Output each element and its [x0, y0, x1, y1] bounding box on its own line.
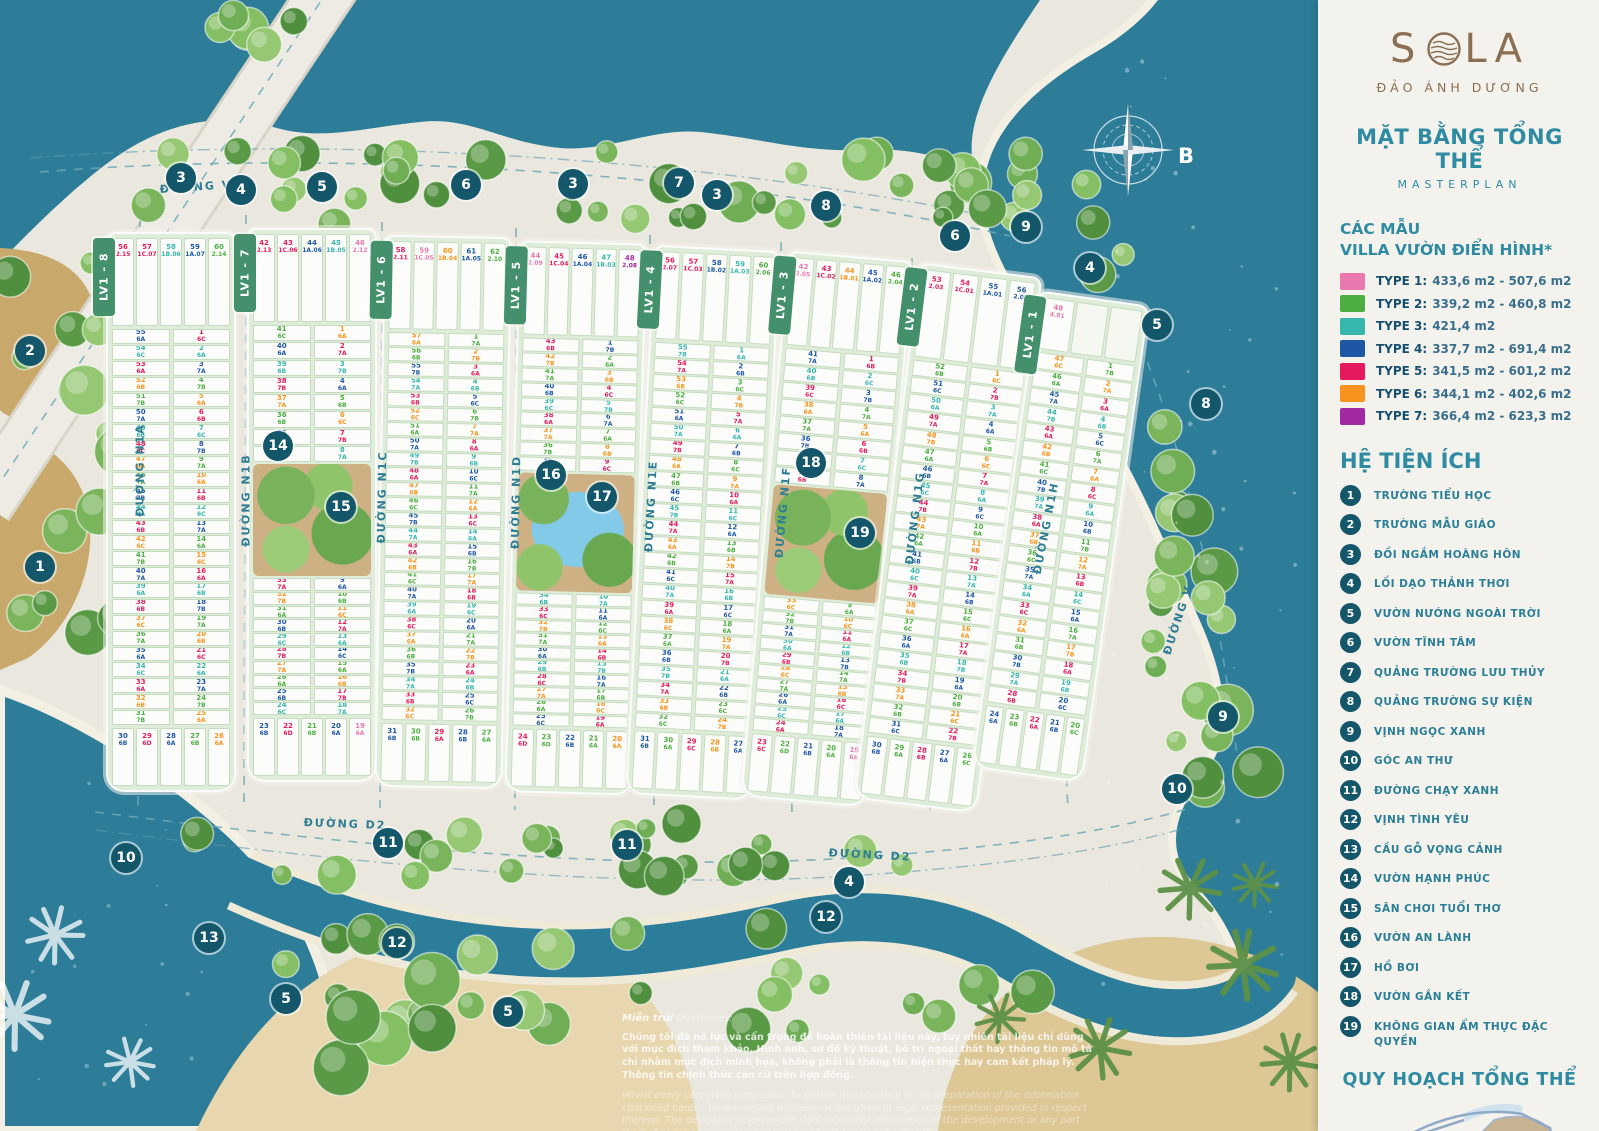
lot-38[interactable]: 386B: [112, 599, 170, 614]
type-label: TYPE 1:: [1376, 274, 1427, 288]
amenities-list: 1TRƯỜNG TIỂU HỌC2TRƯỜNG MẪU GIÁO3ĐỒI NGẮ…: [1340, 485, 1579, 1050]
lot-17[interactable]: 176B: [173, 583, 231, 598]
lot-56[interactable]: 562.15: [112, 238, 134, 326]
map-marker-9[interactable]: 9: [1011, 212, 1041, 242]
lot-2[interactable]: 27A: [314, 342, 372, 358]
lot-59[interactable]: 591A.07: [184, 238, 206, 326]
map-marker-7[interactable]: 7: [664, 168, 694, 198]
lot-19[interactable]: 196A: [349, 718, 371, 776]
lot-7[interactable]: 76C: [173, 424, 231, 439]
lot-31[interactable]: 316B: [632, 730, 656, 789]
lot-42[interactable]: 426B: [384, 556, 441, 571]
lot-42[interactable]: 426C: [112, 535, 170, 550]
lot-37[interactable]: 377A: [253, 394, 311, 410]
lot-22[interactable]: 226D: [770, 735, 796, 795]
lot-46[interactable]: 462.12: [349, 234, 371, 322]
lot-9[interactable]: 97A: [706, 474, 763, 492]
lot-25[interactable]: 256C: [512, 713, 569, 727]
lot-47[interactable]: 471B.03: [593, 248, 617, 337]
lot-20[interactable]: 206A: [605, 731, 628, 790]
lot-31[interactable]: 316A: [253, 606, 311, 619]
lot-19[interactable]: 196A: [572, 715, 629, 729]
lot-37[interactable]: 376C: [112, 615, 170, 630]
lot-8[interactable]: 86B: [579, 443, 636, 458]
lot-18[interactable]: 187B: [173, 599, 231, 614]
lot-11[interactable]: 116C: [314, 606, 372, 619]
lot-4[interactable]: 47B: [173, 377, 231, 392]
lot-34[interactable]: 347A: [382, 676, 439, 691]
lot-54[interactable]: 547A: [387, 377, 444, 392]
lot-16[interactable]: 166B: [700, 586, 757, 604]
lot-43[interactable]: 431C.06: [277, 234, 299, 322]
lot-38[interactable]: 387B: [253, 377, 311, 393]
lot-28[interactable]: 286A: [160, 728, 182, 786]
lot-15[interactable]: 157B: [573, 661, 630, 675]
map-marker-1[interactable]: 1: [25, 552, 55, 582]
lot-45[interactable]: 451C.04: [546, 247, 570, 336]
lot-13[interactable]: 136A: [314, 633, 372, 646]
lot-53[interactable]: 536B: [387, 392, 444, 407]
lot-33[interactable]: 336C: [515, 606, 572, 620]
lot-21[interactable]: 216A: [696, 667, 753, 685]
lot-39[interactable]: 396C: [521, 397, 578, 412]
lot-55[interactable]: 557B: [654, 342, 711, 360]
lot-35[interactable]: 357B: [637, 664, 694, 682]
lot-16[interactable]: 167A: [573, 674, 630, 688]
lot-30[interactable]: 306A: [655, 732, 679, 791]
lot-25[interactable]: 256B: [253, 688, 311, 701]
map-marker-11[interactable]: 11: [612, 830, 642, 860]
lot-6[interactable]: 67B: [446, 408, 503, 423]
lot-12[interactable]: 127A: [314, 619, 372, 632]
lot-36[interactable]: 367A: [112, 631, 170, 646]
lot-30[interactable]: 306B: [112, 728, 134, 786]
lot-10[interactable]: 107A: [575, 594, 632, 608]
lot-42[interactable]: 427B: [522, 352, 579, 367]
lot-10[interactable]: 106A: [706, 490, 763, 508]
map-marker-6[interactable]: 6: [451, 170, 481, 200]
lot-57[interactable]: 571C.03: [679, 252, 705, 341]
lot-16[interactable]: 166B: [314, 675, 372, 688]
lot-60[interactable]: 602.14: [208, 238, 230, 326]
lot-39[interactable]: 396A: [112, 583, 170, 598]
lot-50[interactable]: 507A: [386, 437, 443, 452]
lot-21[interactable]: 216B: [793, 737, 819, 797]
map-marker-4[interactable]: 4: [226, 175, 256, 205]
lot-37[interactable]: 376A: [639, 632, 696, 650]
lot-30[interactable]: 306A: [514, 646, 571, 660]
lot-27[interactable]: 277A: [253, 661, 311, 674]
lot-19[interactable]: 197A: [698, 635, 755, 653]
lot-19[interactable]: 197A: [173, 615, 231, 630]
lot-26[interactable]: 266A: [253, 675, 311, 688]
lot-31[interactable]: 317A: [514, 633, 571, 647]
lot-2[interactable]: 26A: [581, 354, 638, 369]
lot-41[interactable]: 417A: [521, 367, 578, 382]
lot-23[interactable]: 236B: [253, 718, 275, 776]
lot-15[interactable]: 157A: [701, 570, 758, 588]
lot-12[interactable]: 126C: [574, 621, 631, 635]
lot-9[interactable]: 97A: [173, 456, 231, 471]
lot-5[interactable]: 56C: [447, 393, 504, 408]
lot-51[interactable]: 517B: [112, 393, 170, 408]
lot-18[interactable]: 187A: [314, 702, 372, 715]
lot-22[interactable]: 226B: [695, 683, 752, 701]
lot-24[interactable]: 247B: [173, 694, 231, 709]
map-marker-13[interactable]: 13: [194, 923, 224, 953]
lot-29[interactable]: 296B: [514, 659, 571, 673]
type-row-3: TYPE 3:421,4 m2: [1340, 318, 1579, 335]
lot-13[interactable]: 136A: [574, 634, 631, 648]
lot-48[interactable]: 486A: [386, 467, 443, 482]
lot-36[interactable]: 366B: [638, 648, 695, 666]
lot-56[interactable]: 566B: [388, 347, 445, 362]
lot-26[interactable]: 266A: [208, 728, 230, 786]
lot-11[interactable]: 116C: [705, 506, 762, 524]
lot-62[interactable]: 622.10: [483, 243, 506, 331]
lot-33[interactable]: 336A: [112, 678, 170, 693]
lot-49[interactable]: 497B: [386, 452, 443, 467]
map-marker-6[interactable]: 6: [940, 221, 970, 251]
lot-41[interactable]: 416C: [642, 567, 699, 585]
lot-22[interactable]: 227B: [442, 647, 499, 662]
lot-14[interactable]: 146C: [314, 647, 372, 660]
lot-8[interactable]: 86A: [446, 438, 503, 453]
lot-45[interactable]: 457B: [385, 512, 442, 527]
lot-22[interactable]: 226D: [277, 718, 299, 776]
lot-39[interactable]: 396A: [383, 601, 440, 616]
lot-25[interactable]: 256A: [173, 710, 231, 725]
lot-27[interactable]: 276B: [184, 728, 206, 786]
lot-43[interactable]: 436A: [384, 542, 441, 557]
lot-34[interactable]: 346B: [515, 592, 572, 606]
lot-12[interactable]: 126A: [704, 522, 761, 540]
lot-13[interactable]: 136B: [703, 538, 760, 556]
map-marker-3[interactable]: 3: [702, 180, 732, 210]
lot-15[interactable]: 156B: [444, 543, 501, 558]
lot-24[interactable]: 246D: [511, 728, 534, 787]
lot-36[interactable]: 367B: [519, 442, 576, 457]
lot-10[interactable]: 106C: [445, 468, 502, 483]
map-marker-2[interactable]: 2: [15, 336, 45, 366]
lot-28[interactable]: 287B: [253, 647, 311, 660]
lot-45[interactable]: 451B.05: [325, 234, 347, 322]
lot-30[interactable]: 306B: [253, 619, 311, 632]
lot-3[interactable]: 37A: [173, 361, 231, 376]
lot-8[interactable]: 87B: [173, 440, 231, 455]
lot-53[interactable]: 536B: [653, 374, 710, 392]
lot-38[interactable]: 386C: [640, 616, 697, 634]
map-marker-5[interactable]: 5: [307, 172, 337, 202]
lot-15[interactable]: 156A: [314, 661, 372, 674]
lot-36[interactable]: 366B: [383, 646, 440, 661]
lot-4[interactable]: 46A: [314, 377, 372, 393]
lot-57[interactable]: 571C.07: [136, 238, 158, 326]
lot-25[interactable]: 256C: [441, 692, 498, 707]
lot-30[interactable]: 306B: [404, 723, 427, 781]
lot-6[interactable]: 66B: [173, 408, 231, 423]
lot-47[interactable]: 476B: [385, 482, 442, 497]
lot-36[interactable]: 366B: [253, 411, 311, 427]
lot-50[interactable]: 507A: [650, 422, 707, 440]
amenity-item-1: 1TRƯỜNG TIỂU HỌC: [1340, 485, 1579, 506]
lot-7[interactable]: 77B: [314, 429, 372, 445]
lot-26[interactable]: 267B: [441, 707, 498, 722]
lot-3[interactable]: 36A: [447, 363, 504, 378]
map-marker-9[interactable]: 9: [1208, 702, 1238, 732]
lot-24[interactable]: 247B: [694, 715, 751, 733]
lot-39[interactable]: 396B: [253, 360, 311, 376]
lot-3[interactable]: 36B: [581, 369, 638, 384]
lot-9[interactable]: 96B: [445, 453, 502, 468]
amenity-item-19: 19KHÔNG GIAN ẨM THỰC ĐẶC QUYỀN: [1340, 1016, 1579, 1050]
map-marker-16[interactable]: 16: [536, 460, 566, 490]
lot-6[interactable]: 67A: [580, 413, 637, 428]
lot-46[interactable]: 461A.04: [570, 248, 594, 337]
lot-11[interactable]: 116A: [575, 607, 632, 621]
lot-52[interactable]: 526B: [112, 377, 170, 392]
lot-23[interactable]: 236A: [442, 662, 499, 677]
lot-8[interactable]: 87A: [314, 446, 372, 462]
lot-21[interactable]: 216A: [581, 730, 604, 789]
lot-31[interactable]: 316B: [380, 723, 403, 781]
lot-32[interactable]: 326C: [635, 712, 692, 730]
lot-8[interactable]: 86C: [707, 458, 764, 476]
lot-2[interactable]: 26B: [712, 361, 769, 379]
lot-18[interactable]: 186B: [443, 587, 500, 602]
lot-27[interactable]: 277A: [513, 686, 570, 700]
map-marker-17[interactable]: 17: [587, 482, 617, 512]
lot-33[interactable]: 337A: [253, 578, 311, 591]
lot-61[interactable]: 611A.05: [459, 242, 482, 330]
lot-1[interactable]: 16A: [713, 345, 770, 363]
lot-28[interactable]: 286B: [451, 724, 474, 782]
lot-32[interactable]: 326C: [382, 706, 439, 721]
lot-58[interactable]: 581B.02: [702, 253, 728, 342]
lot-41[interactable]: 416C: [253, 325, 311, 341]
lot-40[interactable]: 406B: [521, 382, 578, 397]
lot-38[interactable]: 386A: [520, 412, 577, 427]
lot-17[interactable]: 176C: [700, 603, 757, 621]
map-marker-10[interactable]: 10: [111, 843, 141, 873]
lot-13[interactable]: 136C: [444, 513, 501, 528]
lot-34[interactable]: 347A: [636, 680, 693, 698]
lot-14[interactable]: 146A: [444, 528, 501, 543]
lot-15[interactable]: 156C: [173, 551, 231, 566]
lot-58[interactable]: 581B.06: [160, 238, 182, 326]
lot-18[interactable]: 186A: [699, 619, 756, 637]
lot-38[interactable]: 386C: [383, 616, 440, 631]
lot-24[interactable]: 246C: [253, 702, 311, 715]
map-marker-3[interactable]: 3: [166, 163, 196, 193]
lot-20[interactable]: 206B: [173, 631, 231, 646]
map-marker-3[interactable]: 3: [558, 169, 588, 199]
lot-10[interactable]: 106B: [314, 592, 372, 605]
lot-23[interactable]: 236C: [747, 733, 773, 793]
lot-43[interactable]: 436B: [112, 520, 170, 535]
lot-13[interactable]: 137A: [173, 520, 231, 535]
amenity-number-badge: 6: [1340, 632, 1361, 653]
map-marker-12[interactable]: 12: [811, 902, 841, 932]
lot-19[interactable]: 196C: [443, 602, 500, 617]
lot-9[interactable]: 96C: [578, 458, 635, 473]
lot-23[interactable]: 236D: [534, 729, 557, 788]
lot-51[interactable]: 516A: [387, 422, 444, 437]
lot-21[interactable]: 216C: [173, 647, 231, 662]
map-marker-5[interactable]: 5: [493, 997, 523, 1027]
lot-7[interactable]: 76A: [579, 428, 636, 443]
lot-28[interactable]: 286C: [513, 673, 570, 687]
lot-1[interactable]: 17B: [582, 339, 639, 354]
map-marker-4[interactable]: 4: [1075, 253, 1105, 283]
lot-21[interactable]: 216B: [301, 718, 323, 776]
map-marker-4[interactable]: 4: [834, 867, 864, 897]
map-marker-14[interactable]: 14: [263, 431, 293, 461]
lot-14[interactable]: 146A: [173, 535, 231, 550]
lot-columns: 346B336C327B317A306A296B286C277A266A256C…: [512, 592, 631, 728]
lot-49[interactable]: 497B: [649, 438, 706, 456]
lot-33[interactable]: 336B: [636, 696, 693, 714]
lot-35[interactable]: 357B: [382, 661, 439, 676]
lot-6[interactable]: 66C: [314, 411, 372, 427]
lot-23[interactable]: 237A: [173, 678, 231, 693]
lot-32[interactable]: 326B: [112, 694, 170, 709]
map-marker-8[interactable]: 8: [1191, 389, 1221, 419]
lot-59[interactable]: 591A.03: [725, 255, 751, 344]
lot-37[interactable]: 376A: [383, 631, 440, 646]
lot-3[interactable]: 37B: [314, 360, 372, 376]
lot-40[interactable]: 406A: [253, 342, 311, 358]
lot-1[interactable]: 17A: [448, 333, 505, 348]
lot-28[interactable]: 286B: [702, 734, 726, 793]
lot-18[interactable]: 186C: [572, 701, 629, 715]
lot-27[interactable]: 276A: [475, 725, 498, 783]
lot-40[interactable]: 407A: [112, 567, 170, 582]
lot-20[interactable]: 207B: [697, 651, 754, 669]
lot-42[interactable]: 426B: [643, 551, 700, 569]
lot-4[interactable]: 47B: [711, 393, 768, 411]
lot-unlabeled[interactable]: [1104, 306, 1143, 362]
lot-7[interactable]: 76B: [708, 442, 765, 460]
lot-54[interactable]: 547A: [653, 358, 710, 376]
lot-39[interactable]: 396A: [641, 600, 698, 618]
lot-23[interactable]: 236C: [695, 699, 752, 717]
lot-35[interactable]: 356A: [112, 647, 170, 662]
lot-17[interactable]: 177B: [314, 688, 372, 701]
lot-8[interactable]: 87A: [832, 471, 889, 492]
map-marker-5[interactable]: 5: [1142, 310, 1172, 340]
lot-7[interactable]: 77A: [446, 423, 503, 438]
lot-53[interactable]: 536A: [112, 361, 170, 376]
lot-unlabeled[interactable]: [1070, 302, 1109, 358]
lot-9[interactable]: 96A: [314, 578, 372, 591]
lot-41[interactable]: 417B: [112, 551, 170, 566]
lot-21[interactable]: 217A: [442, 632, 499, 647]
lot-17[interactable]: 176B: [573, 688, 630, 702]
lot-1[interactable]: 16C: [173, 329, 231, 344]
lot-31[interactable]: 317B: [112, 710, 170, 725]
lot-5[interactable]: 57A: [710, 409, 767, 427]
lot-52[interactable]: 526C: [652, 390, 709, 408]
lot-44[interactable]: 441A.06: [301, 234, 323, 322]
lot-17[interactable]: 177A: [443, 572, 500, 587]
lot-12[interactable]: 126A: [445, 498, 502, 513]
lot-43[interactable]: 436B: [522, 337, 579, 352]
map-marker-5[interactable]: 5: [271, 984, 301, 1014]
lot-3[interactable]: 36C: [711, 377, 768, 395]
map-marker-15[interactable]: 15: [326, 492, 356, 522]
map-marker-18[interactable]: 18: [796, 448, 826, 478]
lot-10[interactable]: 106A: [173, 472, 231, 487]
lot-50[interactable]: 507A: [112, 408, 170, 423]
lot-11[interactable]: 117A: [445, 483, 502, 498]
lot-29[interactable]: 296C: [678, 733, 702, 792]
lot-2[interactable]: 26A: [173, 345, 231, 360]
lot-57[interactable]: 576A: [388, 332, 445, 347]
lot-5[interactable]: 56A: [173, 393, 231, 408]
lot-5[interactable]: 57B: [580, 399, 637, 414]
lot-20[interactable]: 206A: [816, 739, 842, 799]
lot-55[interactable]: 557B: [388, 362, 445, 377]
lot-26[interactable]: 266A: [513, 700, 570, 714]
lot-22[interactable]: 226A: [173, 662, 231, 677]
lot-33[interactable]: 336B: [382, 691, 439, 706]
lot-34[interactable]: 346C: [112, 662, 170, 677]
lot-51[interactable]: 516A: [651, 406, 708, 424]
lot-42[interactable]: 422.13: [253, 234, 275, 322]
lot-24[interactable]: 246B: [442, 677, 499, 692]
lot-29[interactable]: 296D: [136, 728, 158, 786]
lot-5[interactable]: 56B: [314, 394, 372, 410]
map-marker-12[interactable]: 12: [382, 928, 412, 958]
lot-4[interactable]: 46B: [447, 378, 504, 393]
lot-46[interactable]: 466C: [385, 497, 442, 512]
lot-22[interactable]: 226B: [558, 730, 581, 789]
lot-37[interactable]: 377A: [520, 427, 577, 442]
lot-6[interactable]: 66A: [709, 425, 766, 443]
lot-40[interactable]: 407A: [384, 586, 441, 601]
lot-59[interactable]: 591C.05: [412, 241, 435, 329]
lot-41[interactable]: 416C: [384, 571, 441, 586]
lot-54[interactable]: 546C: [112, 345, 170, 360]
lot-60[interactable]: 601B.04: [436, 242, 459, 330]
lot-20[interactable]: 206A: [325, 718, 347, 776]
lot-20[interactable]: 206A: [443, 617, 500, 632]
map-marker-11[interactable]: 11: [373, 828, 403, 858]
lot-11[interactable]: 116B: [173, 488, 231, 503]
map-marker-19[interactable]: 19: [845, 518, 875, 548]
lot-29[interactable]: 296A: [428, 724, 451, 782]
lot-14[interactable]: 147B: [702, 554, 759, 572]
lot-12[interactable]: 126C: [173, 504, 231, 519]
lot-40[interactable]: 407A: [642, 583, 699, 601]
lot-55[interactable]: 556A: [112, 329, 170, 344]
page-title: MẶT BẰNG TỔNG THỂ: [1340, 125, 1579, 173]
lot-52[interactable]: 526C: [387, 407, 444, 422]
lot-32[interactable]: 327B: [515, 619, 572, 633]
lot-4[interactable]: 46C: [580, 384, 637, 399]
lot-14[interactable]: 146B: [574, 648, 631, 662]
lot-16[interactable]: 167B: [444, 558, 501, 573]
lot-44[interactable]: 447A: [385, 527, 442, 542]
lot-16[interactable]: 166A: [173, 567, 231, 582]
lot-32[interactable]: 327B: [253, 592, 311, 605]
lot-29[interactable]: 296C: [253, 633, 311, 646]
map-marker-10[interactable]: 10: [1162, 774, 1192, 804]
map-marker-8[interactable]: 8: [811, 191, 841, 221]
lot-1[interactable]: 16A: [314, 325, 372, 341]
lot-2[interactable]: 27B: [447, 348, 504, 363]
